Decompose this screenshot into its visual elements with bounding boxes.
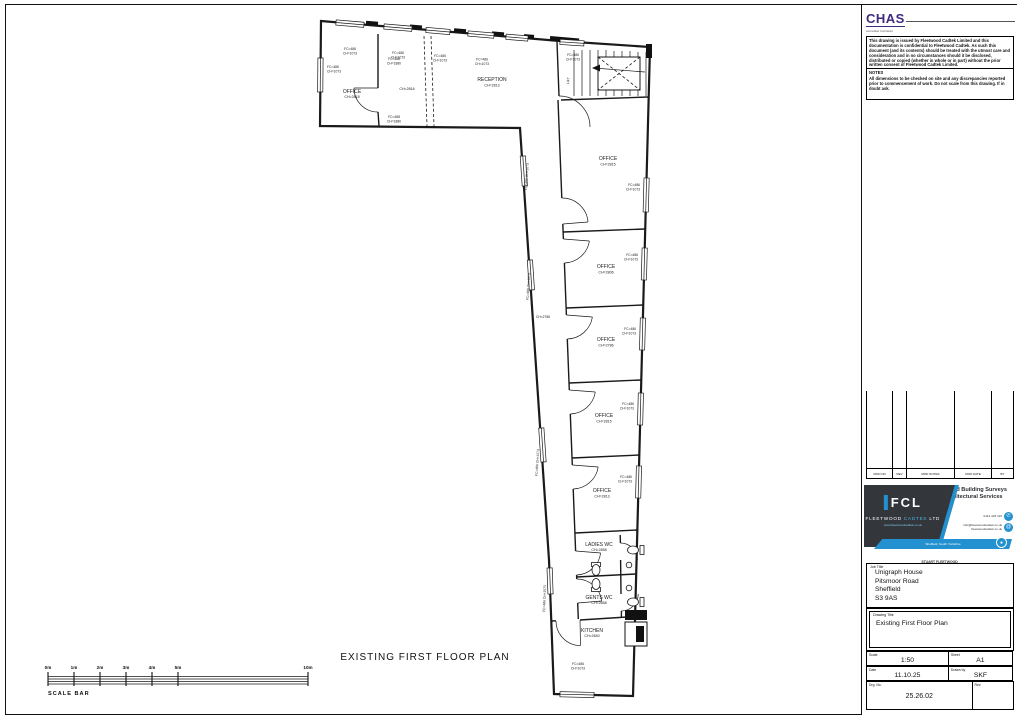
window-label: CH=1073: [624, 258, 638, 262]
disclaimer-box: This drawing is issued by Fleetwood Cadt…: [866, 36, 1014, 69]
scale-value: 1:50: [867, 652, 948, 664]
window-label: FC=486: [620, 475, 632, 479]
window-label: CH=1073: [571, 667, 585, 671]
date-value: 11.10.25: [867, 667, 948, 679]
company-name-1: FLEETWOOD: [866, 516, 902, 521]
company-contacts: 0114 418 110 ✆ info@fleetwoodcadtek.co.u…: [941, 512, 1013, 534]
doors: [354, 88, 638, 646]
door-label: CH=1880: [387, 62, 401, 66]
window-label: CH=1073: [475, 62, 489, 66]
revision-label: Rev.: [975, 683, 982, 687]
company-name-2: CADTEK: [904, 516, 927, 521]
window-label: FC=486: [624, 327, 636, 331]
room-ch: CH=2786: [598, 344, 613, 348]
room-label: OFFICE: [597, 337, 616, 343]
interior-walls: [366, 23, 652, 621]
room-label: OFFICE: [599, 156, 618, 162]
sheet-label: Sheet: [951, 653, 960, 657]
company-phone: 0114 418 110: [984, 515, 1002, 519]
revision-header: MOD DATE: [955, 468, 991, 479]
company-name: FLEETWOOD CADTEK LTD: [864, 516, 949, 521]
drawing-number-row: Drg. No. 25.26.02 Rev.: [866, 681, 1014, 710]
window-label: CH=1073: [433, 59, 447, 63]
door-label: CH=1880: [387, 120, 401, 124]
revision-header: BY: [992, 468, 1013, 479]
company-email-2: fleetwoodcadtek.co.uk: [963, 528, 1002, 532]
drawing-number-cell: Drg. No. 25.26.02: [866, 681, 973, 710]
room-ch: CH=2813: [484, 84, 499, 88]
company-address-ribbon: Sheffield, South Yorkshire: [874, 539, 1012, 549]
scale-tick-label: 2m: [97, 665, 104, 670]
chas-logo-subtext: Accredited Contractor: [866, 29, 905, 33]
scale-tick-label: 1m: [71, 665, 78, 670]
window-label: FC=486: [344, 47, 356, 51]
revision-header: MOD NOTES: [907, 468, 955, 479]
stair-direction-arrow: [592, 65, 600, 72]
room-label: OFFICE: [597, 264, 616, 270]
window-label: CH=1073: [566, 58, 580, 62]
revision-column: MOD NO: [866, 391, 892, 479]
drawing-number-label: Drg. No.: [869, 683, 882, 687]
revision-column: MOD NOTES: [906, 391, 955, 479]
room-ch: CH=2840: [584, 634, 599, 638]
lift-label: LIFT: [566, 77, 570, 84]
room-label: RECEPTION: [477, 77, 507, 83]
door-label: FC=488: [388, 115, 400, 119]
flue-hatched: [625, 610, 647, 620]
scale-tick-label: 0m: [45, 665, 52, 670]
contact-row-email: info@fleetwoodcadtek.co.uk fleetwoodcadt…: [941, 523, 1013, 532]
revision-column: REV: [892, 391, 905, 479]
revision-table: MOD NO REV MOD NOTES MOD DATE BY: [866, 391, 1014, 479]
corridor-window-label: FC=486 CH=1073: [524, 163, 530, 190]
window-label: FC=486: [572, 662, 584, 666]
scale-tick-label: 10m: [303, 665, 312, 670]
revision-cell: [992, 391, 1013, 468]
window-label: FC=486: [327, 65, 339, 69]
date-drawn-row: Date 11.10.25 Drawn by SKF: [866, 666, 1014, 681]
door-label: FC=488: [388, 57, 400, 61]
company-name-3: LTD: [929, 516, 940, 521]
drawn-by-cell: Drawn by SKF: [948, 666, 1013, 681]
window-label: CH=1073: [620, 407, 634, 411]
sheet-cell: Sheet A1: [948, 651, 1013, 666]
revision-cell: [893, 391, 905, 468]
window-label: FC=486: [628, 183, 640, 187]
window-label: FC=486: [476, 58, 488, 62]
floor-plan: OFFICE CH=2818 CH=2816 RECEPTION CH=2813…: [318, 20, 652, 698]
room-ch: CH=2858: [591, 601, 606, 605]
room-label: OFFICE: [593, 488, 612, 494]
window-label: CH=1073: [343, 52, 357, 56]
drawn-by-label: Drawn by: [951, 668, 965, 672]
scale-tick-label: 5m: [175, 665, 182, 670]
room-ch: CH=2815: [596, 420, 611, 424]
window-label: FC=486: [434, 54, 446, 58]
company-logo-inner: FCL FLEETWOOD CADTEK LTD www.fleetwoodca…: [864, 485, 949, 527]
window-label: FC=486: [626, 253, 638, 257]
revision-header: REV: [893, 468, 905, 479]
drawing-title-label: Drawing Title: [873, 613, 1007, 617]
location-pin-icon: ●: [996, 537, 1007, 548]
phone-icon: ✆: [1004, 512, 1013, 521]
email-icon: @: [1004, 523, 1013, 532]
revision-cell-small: Rev.: [973, 681, 1014, 710]
revision-header: MOD NO: [867, 468, 892, 479]
scale-cell: Scale 1:50: [866, 651, 949, 666]
job-title-box: Job Title Unigraph House Pitsmoor Road S…: [866, 563, 1014, 608]
drawing-sheet: OFFICE CH=2818 CH=2816 RECEPTION CH=2813…: [0, 0, 1024, 721]
job-title-line: S3 9AS: [875, 595, 1010, 604]
window-label: CH=1073: [626, 188, 640, 192]
corridor-window-label: FC=486 CH=1073: [542, 585, 547, 612]
date-cell: Date 11.10.25: [866, 666, 949, 681]
company-logo-icon: FCL: [884, 495, 922, 510]
window-label: CH=1073: [618, 480, 632, 484]
room-ch: CH=2858: [591, 548, 606, 552]
room-label: OFFICE: [595, 413, 614, 419]
scale-bar: 0m 1m 2m 3m 4m 5m 10m SCALE BAR: [45, 665, 313, 697]
room-ch: CH=2813: [594, 495, 609, 499]
room-ch: CH=2815: [600, 163, 615, 167]
chas-logo: CHAS Accredited Contractor: [866, 10, 905, 33]
disclaimer-text: This drawing is issued by Fleetwood Cadt…: [869, 38, 1010, 67]
plan-title: EXISTING FIRST FLOOR PLAN: [340, 652, 509, 663]
revision-column: BY: [991, 391, 1013, 479]
window-label: FC=486: [567, 53, 579, 57]
job-title-line: Pitsmoor Road: [875, 578, 1010, 587]
drawing-title-value: Existing First Floor Plan: [876, 620, 1007, 627]
scale-tick-label: 4m: [149, 665, 156, 670]
scale-label: Scale: [869, 653, 877, 657]
drawing-title-inner: Drawing Title Existing First Floor Plan: [869, 611, 1011, 648]
corridor-ch: CH=2786: [536, 315, 550, 319]
divider: [906, 21, 1015, 22]
room-ch: CH=2806: [598, 271, 613, 275]
corridor-window-label: FC=486 CH=1073: [535, 449, 541, 476]
plan-labels: OFFICE CH=2818 CH=2816 RECEPTION CH=2813…: [327, 47, 640, 671]
revision-cell: [955, 391, 991, 468]
room-ch: CH=2816: [399, 87, 414, 91]
company-emails: info@fleetwoodcadtek.co.uk fleetwoodcadt…: [963, 524, 1002, 532]
scale-bar-caption: SCALE BAR: [48, 691, 90, 697]
scale-sheet-row: Scale 1:50 Sheet A1: [866, 651, 1014, 666]
chas-logo-text: CHAS: [866, 11, 905, 27]
stair: [574, 50, 646, 96]
date-label: Date: [869, 668, 876, 672]
notes-box: NOTES All dimensions to be checked on si…: [866, 69, 1014, 100]
window-label: CH=1073: [327, 70, 341, 74]
drawing-title-box: Drawing Title Existing First Floor Plan: [866, 608, 1014, 651]
company-block: Measured Building Surveys & Architectura…: [864, 482, 1015, 566]
contact-row-phone: 0114 418 110 ✆: [941, 512, 1013, 521]
window-label: CH=1073: [622, 332, 636, 336]
revision-column: MOD DATE: [954, 391, 991, 479]
title-block-panel: CHAS Accredited Contractor This drawing …: [861, 5, 1018, 715]
job-title-line: Sheffield: [875, 586, 1010, 595]
window-label: FC=486: [392, 51, 404, 55]
job-title-line: Unigraph House: [875, 569, 1010, 578]
company-website: www.fleetwoodcadtek.co.uk: [864, 523, 949, 527]
beam-dashed-lines: [424, 36, 434, 126]
drawing-number-value: 25.26.02: [867, 682, 972, 700]
room-ch: CH=2818: [344, 95, 359, 99]
revision-cell: [907, 391, 955, 468]
revision-cell: [867, 391, 892, 468]
scale-tick-label: 3m: [123, 665, 130, 670]
notes-text: All dimensions to be checked on site and…: [869, 76, 1005, 91]
window-label: FC=486: [622, 402, 634, 406]
